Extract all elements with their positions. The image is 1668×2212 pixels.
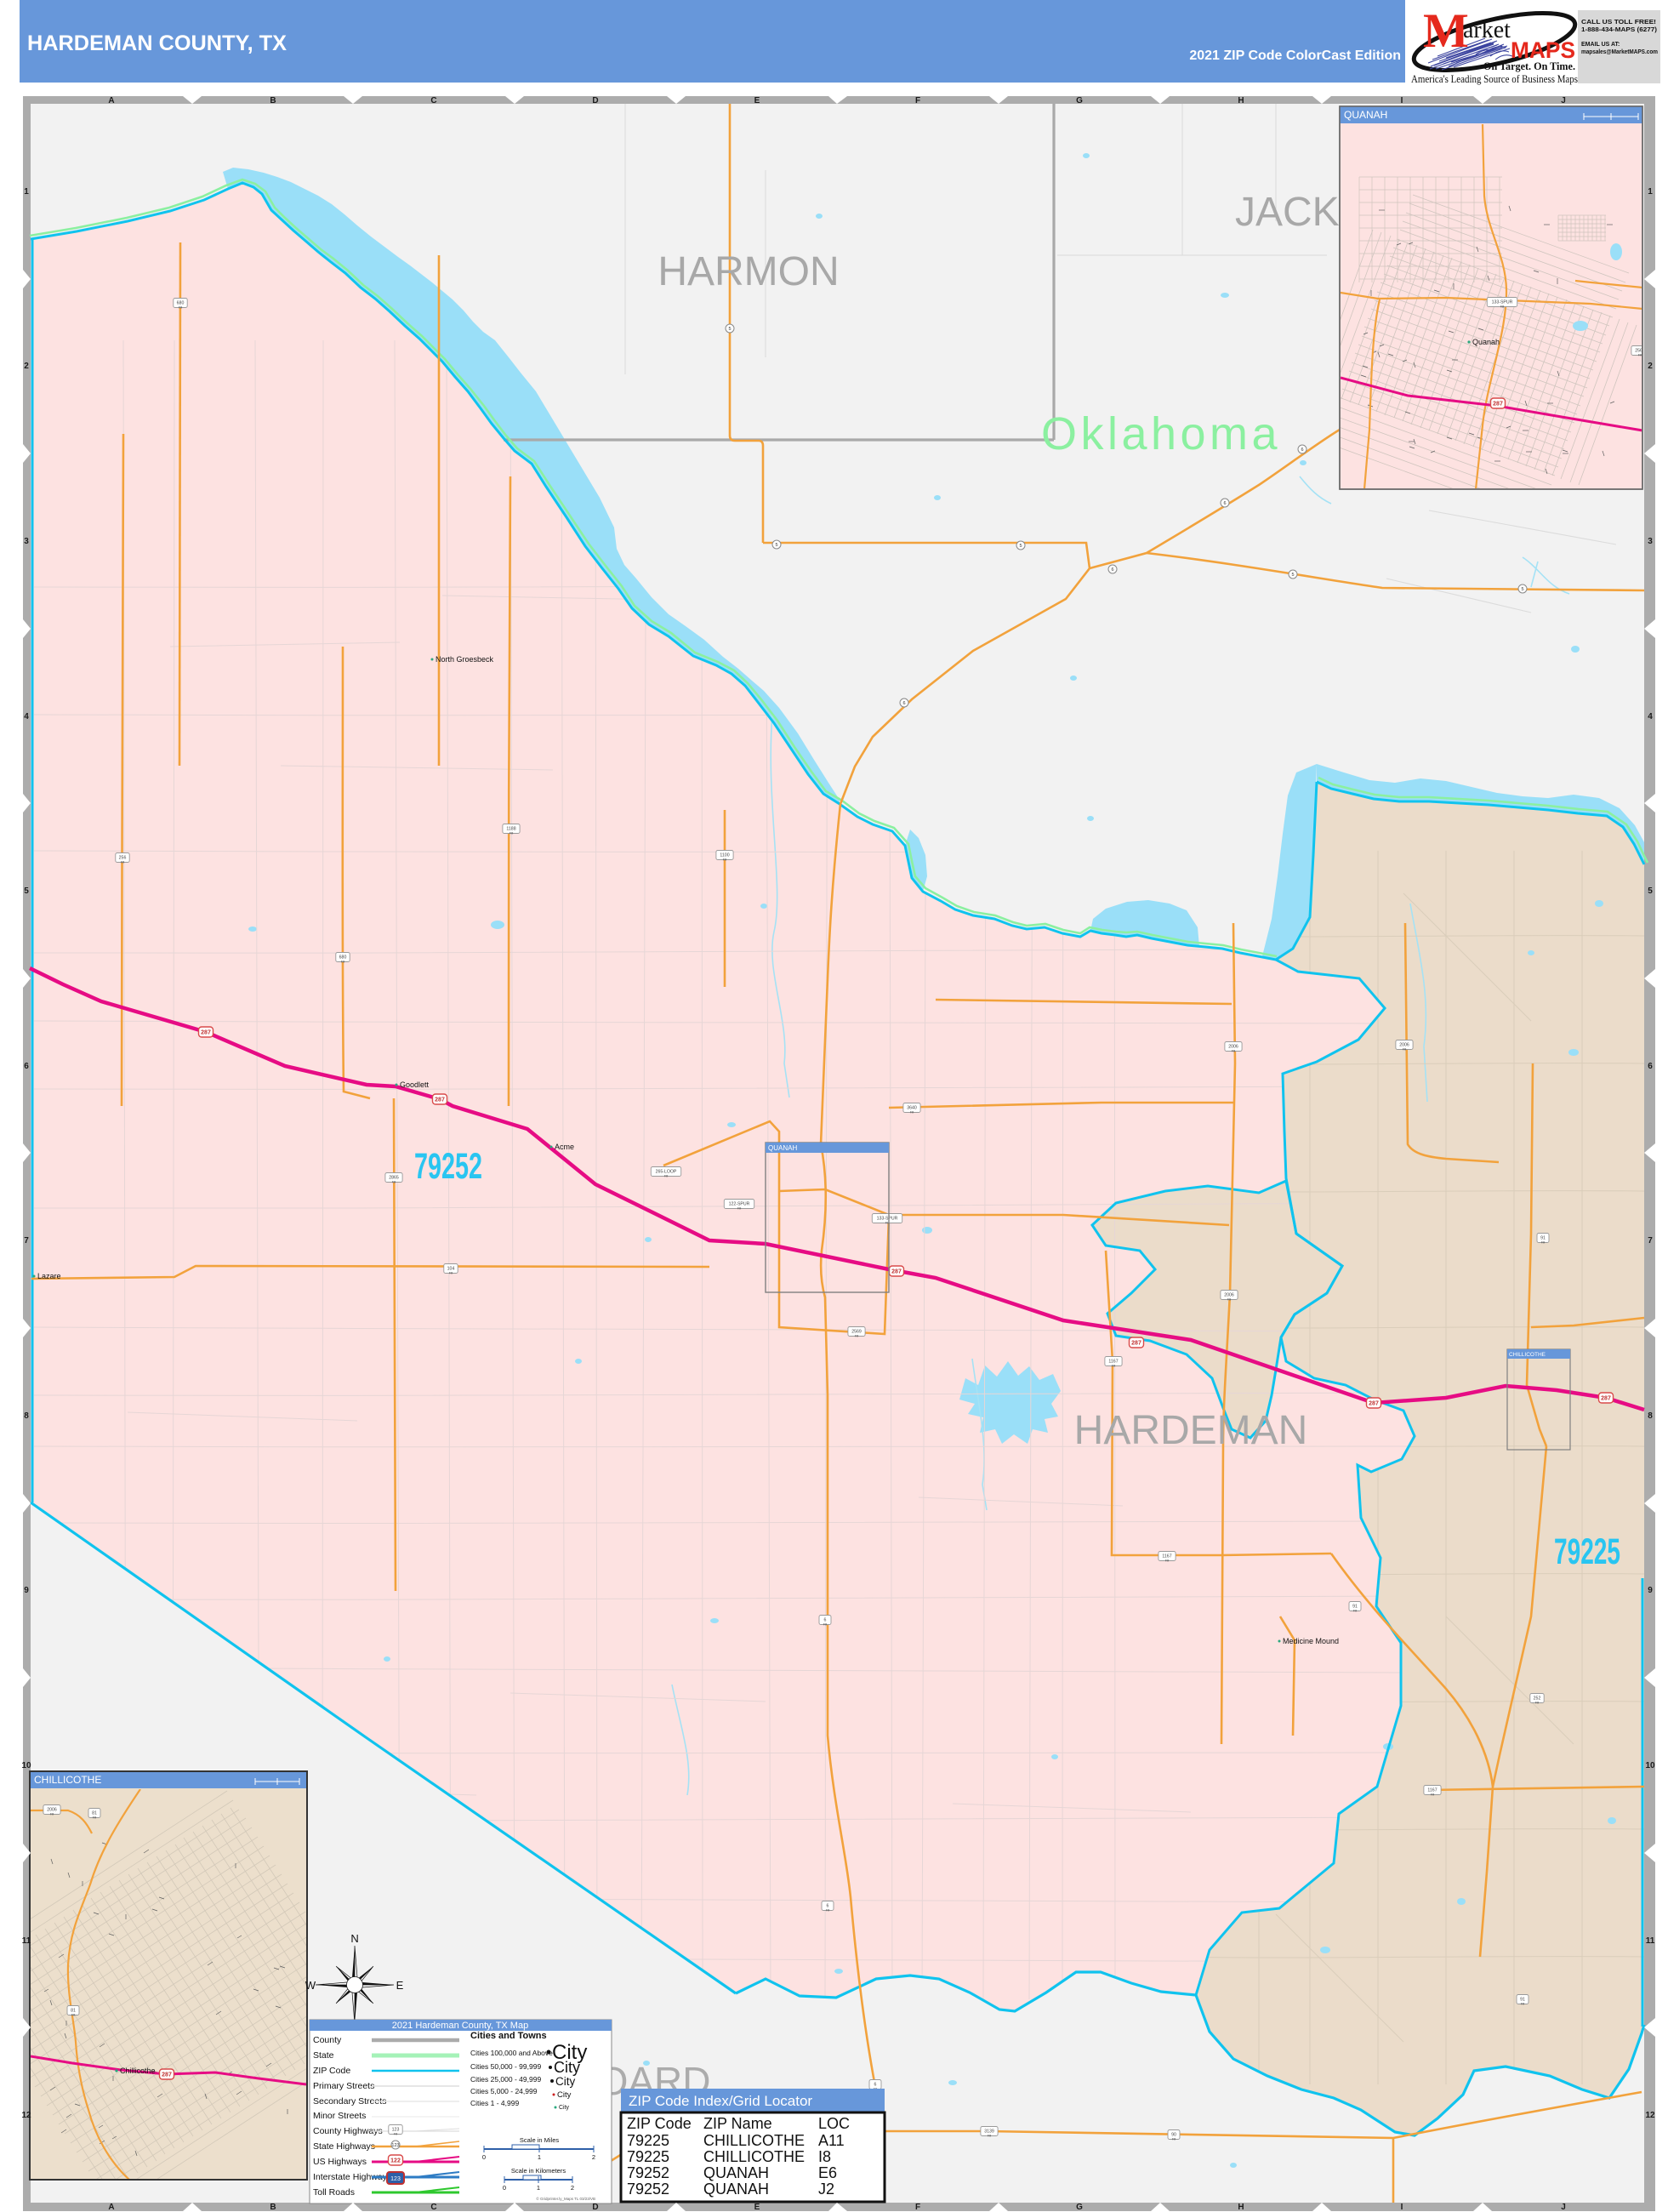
svg-text:City: City [557, 2090, 572, 2100]
svg-text:11: 11 [22, 1936, 31, 1946]
svg-text:America's Leading Source of B: America's Leading Source of Business Map… [1411, 72, 1578, 85]
svg-text:mapsales@MarketMAPS.com: mapsales@MarketMAPS.com [1581, 49, 1658, 55]
svg-text:79252: 79252 [627, 2181, 669, 2198]
svg-text:5: 5 [1648, 887, 1653, 896]
svg-text:FM: FM [1165, 1559, 1170, 1563]
svg-text:FM: FM [1112, 1365, 1116, 1368]
svg-text:79252: 79252 [627, 2164, 669, 2181]
svg-text:Toll Roads: Toll Roads [313, 2187, 355, 2198]
svg-text:5: 5 [1291, 573, 1294, 578]
svg-text:M: M [1423, 4, 1469, 58]
svg-text:ZIP Name: ZIP Name [703, 2115, 772, 2132]
svg-text:Oklahoma: Oklahoma [1041, 408, 1281, 459]
svg-text:Lazare: Lazare [37, 1272, 61, 1280]
svg-text:9: 9 [24, 1586, 29, 1595]
svg-text:B: B [270, 2203, 276, 2212]
svg-text:79225: 79225 [627, 2148, 669, 2165]
svg-text:FM: FM [1521, 2003, 1525, 2006]
svg-text:122: 122 [390, 2158, 401, 2164]
svg-text:1: 1 [24, 187, 29, 197]
svg-text:Cities 100,000 and Above: Cities 100,000 and Above [470, 2049, 553, 2057]
svg-text:QUANAH: QUANAH [1344, 109, 1387, 121]
svg-text:2021 ZIP Code ColorCast Editio: 2021 ZIP Code ColorCast Edition [1189, 48, 1401, 63]
svg-text:CHILLICOTHE: CHILLICOTHE [1509, 1352, 1546, 1358]
svg-text:6: 6 [1648, 1062, 1653, 1071]
svg-text:State Highways: State Highways [313, 2141, 375, 2152]
svg-text:8: 8 [1648, 1411, 1653, 1421]
svg-text:5: 5 [1019, 544, 1022, 549]
svg-text:A: A [108, 2203, 114, 2212]
svg-text:6: 6 [1301, 448, 1303, 453]
svg-text:State: State [313, 2050, 334, 2061]
svg-text:4: 4 [1648, 712, 1653, 721]
svg-text:© Gridprinter.ly_Maps TL 03/23: © Gridprinter.ly_Maps TL 03/23/VB [536, 2196, 595, 2201]
svg-text:North Groesbeck: North Groesbeck [436, 655, 494, 664]
svg-text:4: 4 [24, 712, 29, 721]
svg-text:City: City [555, 2075, 575, 2088]
svg-text:H: H [1238, 2203, 1244, 2212]
svg-text:FM: FM [392, 1181, 396, 1184]
svg-text:1: 1 [537, 2184, 540, 2192]
svg-text:3: 3 [24, 537, 29, 546]
svg-text:FM: FM [93, 1816, 97, 1820]
svg-text:79225: 79225 [627, 2132, 669, 2149]
svg-text:2021 Hardeman County, TX Map: 2021 Hardeman County, TX Map [392, 2021, 528, 2031]
svg-text:B: B [270, 96, 276, 105]
svg-text:HARDEMAN COUNTY, TX: HARDEMAN COUNTY, TX [27, 31, 287, 55]
svg-text:E: E [396, 1979, 404, 1992]
svg-text:EMAIL US AT:: EMAIL US AT: [1581, 42, 1620, 48]
svg-text:123: 123 [391, 2143, 399, 2148]
svg-text:287: 287 [1601, 1396, 1611, 1402]
svg-text:5: 5 [1521, 587, 1523, 592]
svg-text:FM: FM [1227, 1298, 1232, 1302]
svg-text:QUANAH: QUANAH [703, 2181, 769, 2198]
svg-text:Cities 50,000 - 99,999: Cities 50,000 - 99,999 [470, 2062, 541, 2071]
svg-text:9: 9 [1648, 1586, 1653, 1595]
svg-text:H: H [1238, 96, 1244, 105]
svg-text:1: 1 [538, 2153, 541, 2161]
svg-text:FM: FM [988, 2135, 992, 2138]
svg-text:D: D [592, 96, 598, 105]
svg-text:Goodlett: Goodlett [400, 1080, 430, 1089]
svg-text:FM: FM [510, 832, 514, 835]
svg-text:2: 2 [571, 2184, 574, 2192]
svg-text:HARDEMAN: HARDEMAN [1074, 1408, 1308, 1453]
svg-text:8: 8 [24, 1411, 29, 1421]
svg-text:J2: J2 [818, 2181, 834, 2198]
svg-text:FM: FM [1403, 1048, 1407, 1052]
svg-text:Medicine Mound: Medicine Mound [1283, 1637, 1339, 1645]
svg-text:Cities and Towns: Cities and Towns [470, 2031, 547, 2041]
svg-text:Primary Streets: Primary Streets [313, 2081, 374, 2091]
svg-text:2: 2 [1648, 362, 1653, 371]
svg-text:5: 5 [24, 887, 29, 896]
svg-text:FM: FM [179, 306, 183, 310]
svg-text:E: E [754, 2203, 760, 2212]
svg-text:A: A [108, 96, 114, 105]
svg-text:I8: I8 [818, 2148, 831, 2165]
svg-text:FM: FM [1500, 305, 1505, 309]
svg-text:I: I [1401, 96, 1403, 105]
svg-text:FM: FM [71, 2014, 76, 2017]
svg-text:FM: FM [723, 858, 727, 862]
svg-text:FM: FM [1172, 2138, 1176, 2141]
svg-text:0: 0 [503, 2184, 506, 2192]
svg-text:HARMON: HARMON [658, 249, 839, 294]
svg-text:FM: FM [449, 1272, 453, 1275]
svg-text:FM: FM [664, 1175, 669, 1178]
svg-text:ZIP Code: ZIP Code [627, 2115, 692, 2132]
svg-text:D: D [592, 2203, 598, 2212]
svg-text:County: County [313, 2035, 342, 2045]
svg-text:Cities 5,000 - 24,999: Cities 5,000 - 24,999 [470, 2087, 538, 2095]
svg-text:C: C [430, 2203, 436, 2212]
svg-text:E: E [754, 96, 760, 105]
svg-text:C: C [430, 96, 436, 105]
svg-text:6: 6 [1111, 567, 1113, 573]
svg-text:12: 12 [21, 2111, 31, 2120]
svg-text:287: 287 [891, 1269, 902, 1275]
svg-text:Minor Streets: Minor Streets [313, 2111, 366, 2121]
svg-text:7: 7 [1648, 1236, 1653, 1246]
svg-text:FM: FM [341, 961, 345, 964]
svg-text:US Highways: US Highways [313, 2157, 367, 2167]
svg-text:CHILLICOTHE: CHILLICOTHE [703, 2132, 805, 2149]
svg-text:287: 287 [1131, 1341, 1141, 1347]
svg-text:10: 10 [21, 1761, 31, 1770]
svg-text:6: 6 [24, 1062, 29, 1071]
svg-text:FM: FM [1541, 1241, 1546, 1245]
svg-text:City: City [554, 2059, 580, 2076]
svg-text:FM: FM [1353, 1610, 1358, 1613]
svg-text:F: F [915, 2203, 920, 2212]
svg-text:City: City [559, 2105, 570, 2111]
svg-text:287: 287 [1369, 1401, 1379, 1407]
svg-text:FM: FM [1638, 354, 1642, 357]
svg-text:Cities 1 - 4,999: Cities 1 - 4,999 [470, 2099, 519, 2107]
svg-text:A11: A11 [818, 2132, 845, 2149]
svg-text:3: 3 [1648, 537, 1653, 546]
svg-text:FM: FM [855, 1335, 859, 1338]
svg-text:FM: FM [826, 1909, 830, 1913]
svg-text:12: 12 [1645, 2111, 1655, 2120]
svg-text:287: 287 [1493, 402, 1503, 408]
svg-text:W: W [305, 1979, 316, 1992]
svg-text:6: 6 [1223, 501, 1226, 506]
svg-text:F: F [915, 96, 920, 105]
svg-text:5: 5 [775, 543, 777, 548]
svg-text:287: 287 [435, 1097, 445, 1103]
svg-text:11: 11 [1646, 1936, 1655, 1946]
svg-text:FM: FM [1232, 1050, 1236, 1053]
svg-text:LOC: LOC [818, 2115, 850, 2132]
svg-text:CHILLICOTHE: CHILLICOTHE [703, 2148, 805, 2165]
svg-text:287: 287 [201, 1030, 211, 1036]
svg-text:0: 0 [482, 2153, 486, 2161]
svg-text:Acme: Acme [555, 1143, 574, 1151]
svg-text:5: 5 [728, 327, 731, 332]
svg-text:FM: FM [121, 861, 125, 864]
svg-text:FM: FM [1535, 1702, 1540, 1705]
svg-text:Quanah: Quanah [1472, 338, 1500, 346]
svg-text:E6: E6 [818, 2164, 837, 2181]
svg-text:6: 6 [902, 701, 905, 706]
svg-text:QUANAH: QUANAH [703, 2164, 769, 2181]
svg-text:79252: 79252 [414, 1146, 482, 1187]
svg-text:J: J [1561, 2203, 1566, 2212]
svg-text:1-888-434-MAPS (6277): 1-888-434-MAPS (6277) [1581, 27, 1657, 33]
svg-text:Scale in Kilometers: Scale in Kilometers [511, 2167, 566, 2175]
svg-text:G: G [1076, 2203, 1083, 2212]
svg-text:123: 123 [390, 2176, 401, 2182]
svg-text:CHILLICOTHE: CHILLICOTHE [34, 1774, 101, 1786]
svg-text:7: 7 [24, 1236, 29, 1246]
svg-text:FM: FM [1431, 1793, 1435, 1797]
svg-text:2: 2 [592, 2153, 595, 2161]
svg-text:FM: FM [737, 1207, 742, 1211]
svg-text:CALL US TOLL FREE!: CALL US TOLL FREE! [1581, 20, 1656, 26]
svg-text:FM: FM [50, 1813, 54, 1816]
svg-text:ZIP Code: ZIP Code [313, 2066, 350, 2076]
svg-text:Scale in Miles: Scale in Miles [520, 2136, 560, 2144]
svg-text:I: I [1401, 2203, 1403, 2212]
svg-text:79225: 79225 [1554, 1531, 1620, 1572]
svg-text:2: 2 [24, 362, 29, 371]
svg-text:ZIP Code Index/Grid Locator: ZIP Code Index/Grid Locator [629, 2093, 812, 2109]
svg-text:Cities 25,000 - 49,999: Cities 25,000 - 49,999 [470, 2075, 541, 2084]
svg-text:On Target. On Time.: On Target. On Time. [1483, 60, 1575, 72]
svg-text:J: J [1561, 96, 1566, 105]
svg-text:N: N [350, 1932, 358, 1945]
svg-text:FM: FM [394, 2133, 398, 2136]
svg-text:QUANAH: QUANAH [768, 1144, 797, 1152]
svg-text:FM: FM [823, 1623, 828, 1627]
svg-text:10: 10 [1645, 1761, 1655, 1770]
svg-text:1: 1 [1648, 187, 1653, 197]
svg-text:Chillicothe: Chillicothe [120, 2067, 156, 2075]
svg-text:FM: FM [910, 1111, 914, 1115]
svg-text:287: 287 [162, 2072, 172, 2078]
svg-text:arket: arket [1463, 17, 1511, 43]
svg-text:G: G [1076, 96, 1083, 105]
